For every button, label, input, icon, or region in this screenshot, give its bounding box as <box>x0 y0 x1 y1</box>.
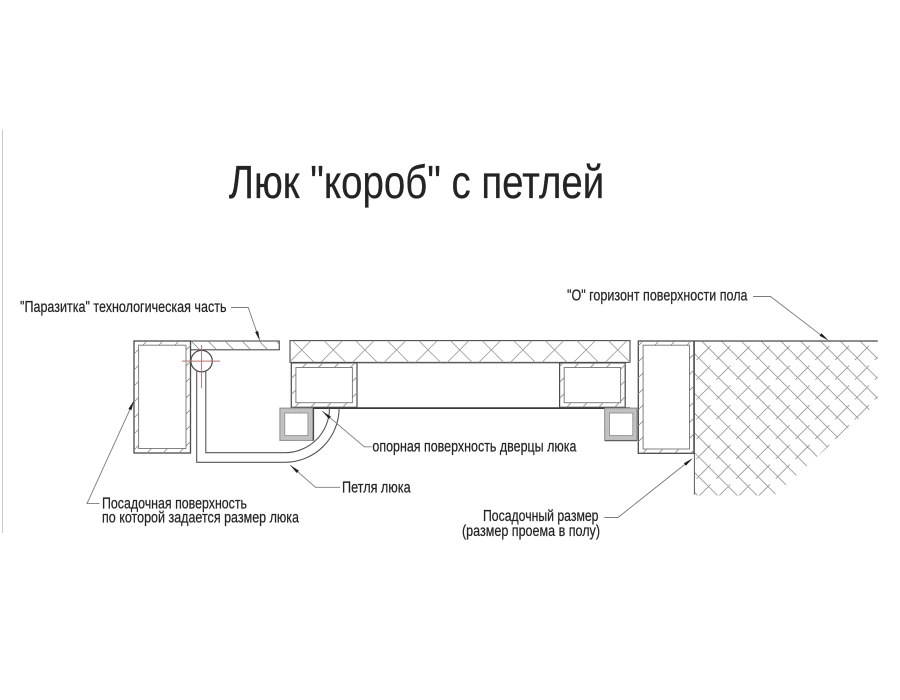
svg-text:Петля люка: Петля люка <box>342 480 411 497</box>
svg-text:"О" горизонт поверхности пола: "О" горизонт поверхности пола <box>567 288 748 305</box>
svg-text:"Паразитка" технологическая ча: "Паразитка" технологическая часть <box>20 299 227 316</box>
svg-text:(размер проема в полу): (размер проема в полу) <box>462 523 600 540</box>
svg-text:по которой задается размер люк: по которой задается размер люка <box>102 510 299 527</box>
svg-text:Люк "короб" с петлей: Люк "короб" с петлей <box>229 156 605 208</box>
svg-text:опорная поверхность дверцы люк: опорная поверхность дверцы люка <box>372 438 576 455</box>
